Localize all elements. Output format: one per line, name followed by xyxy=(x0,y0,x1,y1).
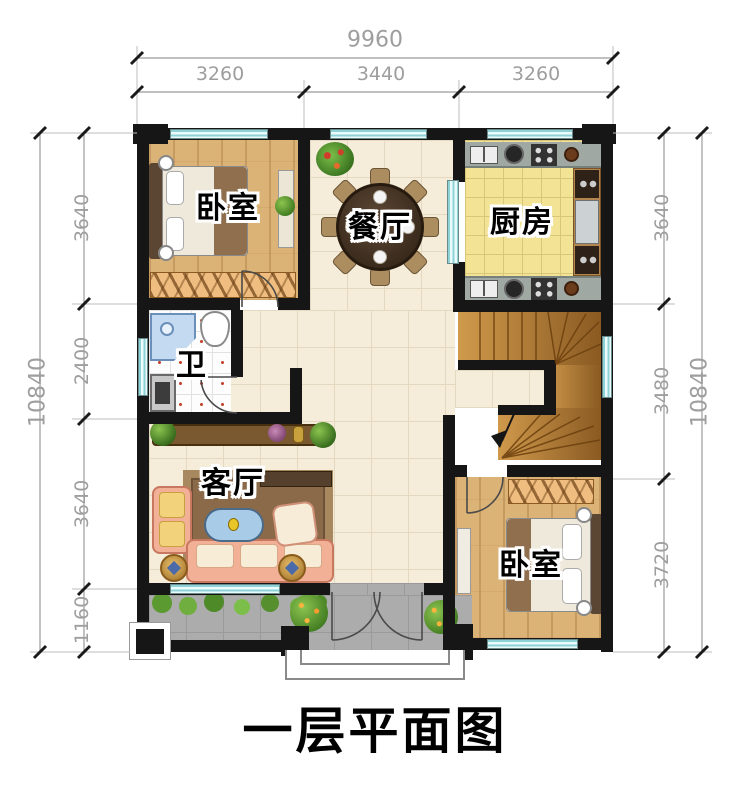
room-label-kitchen: 厨房 xyxy=(490,197,554,241)
entry-steps-inner xyxy=(300,650,450,665)
pot-icon xyxy=(504,144,524,164)
window-dining xyxy=(330,129,427,139)
bedside-lamp xyxy=(158,245,174,261)
stove-icon xyxy=(531,278,557,300)
porch-column-core xyxy=(136,629,164,654)
dresser xyxy=(457,528,471,594)
dim-left-seg: 3640 xyxy=(71,480,93,528)
bowl-icon xyxy=(564,281,579,296)
kitchen-sliding-door xyxy=(447,180,459,264)
wall-bedroom-south xyxy=(137,298,240,310)
wall-porch-south xyxy=(165,640,283,652)
dim-left-seg: 2400 xyxy=(71,337,93,385)
wardrobe xyxy=(150,272,296,298)
wall-bath-south xyxy=(137,412,302,424)
room-label-living: 客厅 xyxy=(201,458,265,502)
wall-bedroom2-north xyxy=(455,465,467,477)
window-kitchen xyxy=(487,129,573,139)
armchair xyxy=(271,500,318,547)
wall-hall-stub xyxy=(290,368,302,412)
stair-wall xyxy=(458,360,556,370)
dim-right-total: 10840 xyxy=(688,357,713,427)
vase xyxy=(293,426,304,443)
dim-left-seg: 1160 xyxy=(71,596,93,644)
table-decor xyxy=(228,518,239,531)
dim-left-seg: 3640 xyxy=(71,194,93,242)
plant xyxy=(310,422,336,448)
plan-title: 一层平面图 xyxy=(243,691,508,763)
shrub-row xyxy=(152,593,172,613)
bed-headboard xyxy=(149,163,163,259)
stair-upper-flight xyxy=(458,312,601,365)
dim-top-total: 9960 xyxy=(347,28,403,53)
plant xyxy=(275,196,295,216)
floor-stair-void xyxy=(455,370,544,408)
room-label-bedroom-top: 卧室 xyxy=(196,183,260,227)
flower-pot xyxy=(268,424,286,442)
pillow xyxy=(166,171,184,205)
console-table xyxy=(152,424,332,446)
dim-top-seg: 3260 xyxy=(512,63,560,85)
dim-top-seg: 3440 xyxy=(357,63,405,85)
pillow xyxy=(562,524,582,560)
wardrobe xyxy=(508,479,594,504)
stove-icon xyxy=(531,144,557,166)
dim-right-seg: 3480 xyxy=(651,367,673,415)
window-stair xyxy=(602,336,612,398)
wall-hall-bedroom xyxy=(443,415,455,652)
dim-left-total: 10840 xyxy=(26,357,51,427)
shower-drain xyxy=(160,322,174,336)
bowl-icon xyxy=(564,147,579,162)
window-bedroom-bottom xyxy=(487,639,578,649)
plant xyxy=(316,142,354,176)
bedside-lamp xyxy=(158,155,174,171)
wall-bedroom-dining xyxy=(298,140,310,310)
bedside-lamp xyxy=(576,600,592,616)
sink-divider xyxy=(483,281,485,296)
dim-top-seg: 3260 xyxy=(196,63,244,85)
sofa-cushion xyxy=(196,544,234,568)
wall-living-south xyxy=(424,583,455,595)
plate xyxy=(373,250,387,264)
wall-bath-east xyxy=(231,310,243,377)
room-label-dining: 餐厅 xyxy=(348,202,412,246)
pillow xyxy=(562,568,582,604)
dim-right-seg: 3640 xyxy=(651,194,673,242)
fridge-icon xyxy=(575,200,599,244)
dim-right-seg: 3720 xyxy=(651,541,673,589)
room-label-bathroom: 卫 xyxy=(176,340,208,384)
tv-console xyxy=(260,471,332,487)
window-bedroom-top xyxy=(170,129,268,139)
washer-door xyxy=(155,382,170,404)
sofa-cushion xyxy=(240,544,278,568)
window-bathroom xyxy=(138,338,148,396)
wall-bedroom-south xyxy=(278,298,310,310)
stair-wall xyxy=(498,405,556,415)
appliance xyxy=(575,170,599,198)
sofa-cushion xyxy=(159,521,185,547)
floor-plan: 9960 3260 3440 3260 10840 3640 2400 3640… xyxy=(0,0,750,802)
wall-kitchen-south xyxy=(453,300,613,312)
wall-bedroom2-north xyxy=(507,465,613,477)
bedside-lamp xyxy=(576,507,592,523)
sofa-cushion xyxy=(159,492,185,518)
window-living xyxy=(170,584,280,594)
stair-lower-flight xyxy=(498,408,601,460)
appliance xyxy=(575,246,599,274)
sink-divider xyxy=(483,147,485,162)
pot-icon xyxy=(504,279,524,299)
room-label-bedroom-bottom: 卧室 xyxy=(499,540,563,584)
wall-kitchen-west xyxy=(453,140,465,182)
floor-entry-recess xyxy=(330,583,424,595)
